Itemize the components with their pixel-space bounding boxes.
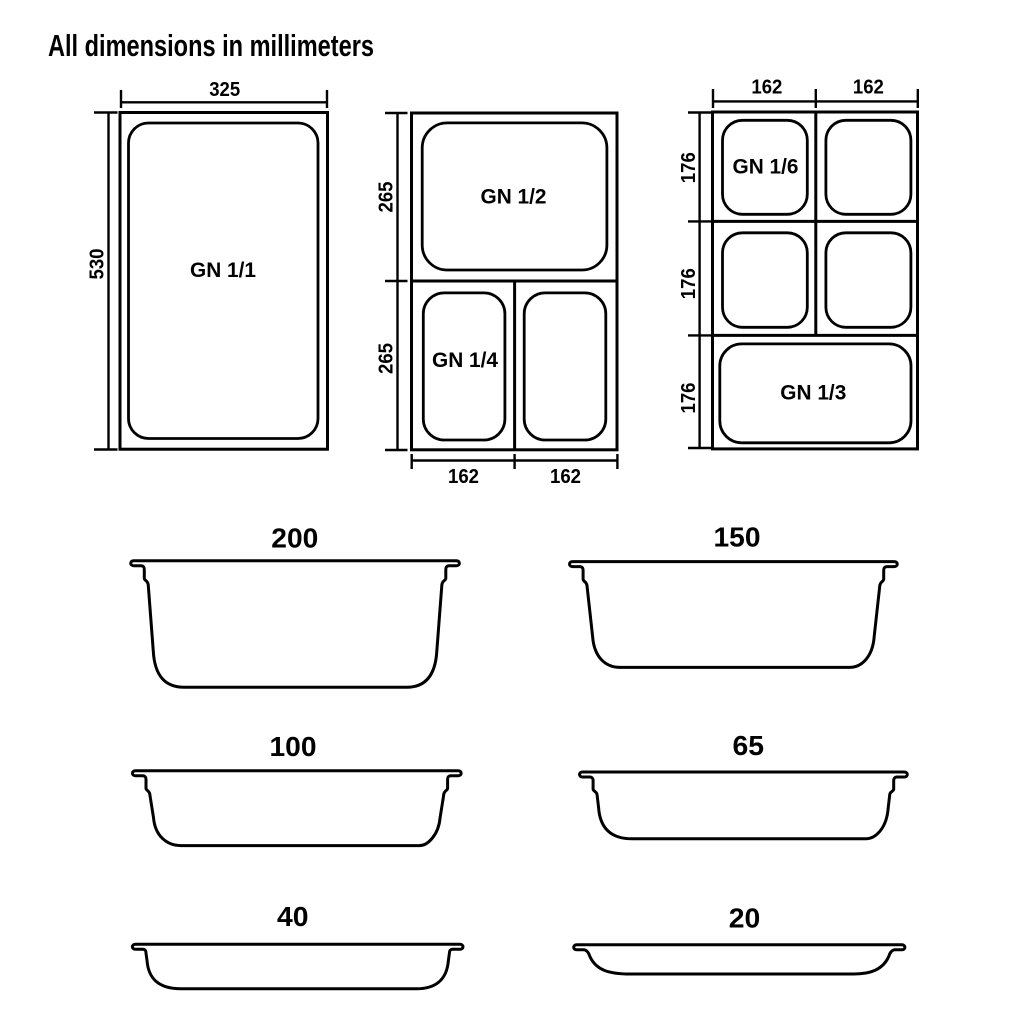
svg-text:40: 40 [277, 901, 309, 932]
svg-text:530: 530 [87, 249, 109, 280]
svg-text:All dimensions in millimeters: All dimensions in millimeters [48, 29, 374, 63]
svg-text:GN 1/2: GN 1/2 [481, 185, 547, 208]
svg-text:GN 1/6: GN 1/6 [733, 156, 799, 179]
svg-text:176: 176 [678, 383, 700, 414]
svg-text:325: 325 [209, 79, 240, 101]
svg-text:GN 1/3: GN 1/3 [780, 382, 846, 405]
svg-text:GN 1/4: GN 1/4 [432, 349, 498, 372]
svg-text:200: 200 [271, 522, 318, 553]
svg-text:162: 162 [448, 466, 479, 488]
svg-text:GN 1/1: GN 1/1 [190, 259, 256, 282]
svg-text:20: 20 [729, 903, 761, 934]
svg-text:176: 176 [678, 268, 700, 299]
svg-text:265: 265 [376, 182, 398, 213]
svg-text:65: 65 [733, 730, 765, 761]
svg-text:176: 176 [678, 152, 700, 183]
svg-text:162: 162 [550, 466, 581, 488]
svg-text:162: 162 [751, 77, 782, 99]
svg-text:162: 162 [853, 77, 884, 99]
svg-text:150: 150 [714, 522, 761, 553]
svg-text:265: 265 [376, 343, 398, 374]
svg-text:100: 100 [270, 731, 317, 762]
